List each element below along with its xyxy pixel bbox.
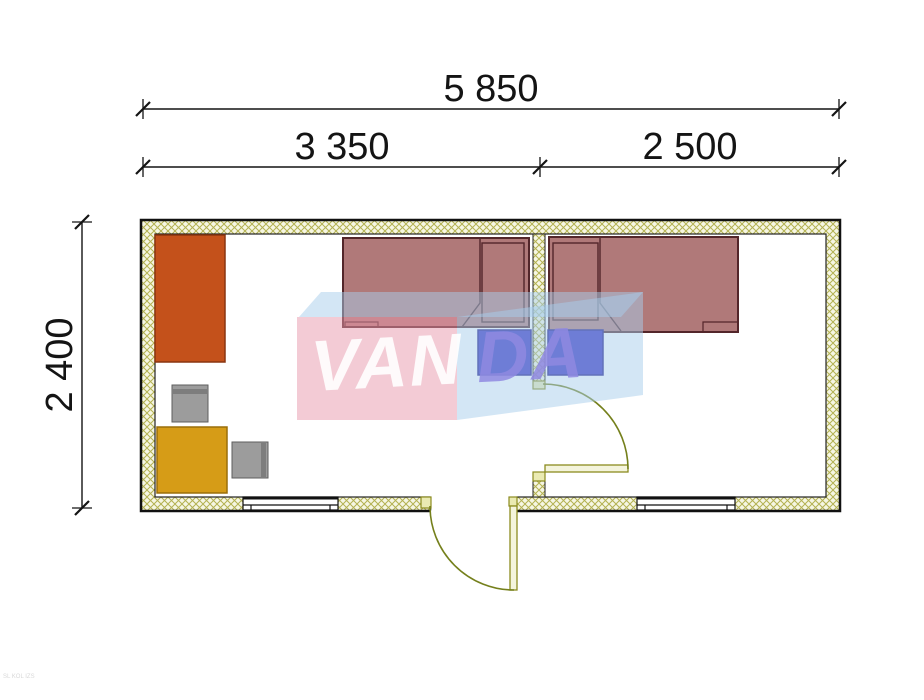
vanda-watermark: VAN DA bbox=[297, 292, 643, 420]
window-right-room bbox=[637, 497, 735, 510]
chair-backrest bbox=[172, 389, 208, 394]
entrance-door-leaf bbox=[510, 506, 517, 590]
dimension-label-right-room: 2 500 bbox=[642, 126, 737, 168]
floor-plan-drawing: VAN DA 5 850 3 350 2 500 2 400 SL KOL IZ… bbox=[0, 0, 924, 700]
corner-note: SL KOL IZS bbox=[3, 674, 35, 680]
partition-lower-stub bbox=[533, 481, 545, 497]
dimension-depth: 2 400 bbox=[39, 215, 92, 515]
window-left-room bbox=[243, 497, 338, 510]
watermark-text-van: VAN bbox=[309, 319, 466, 407]
entrance-door-swing-arc bbox=[430, 506, 514, 590]
dimension-room-widths: 3 350 2 500 bbox=[136, 126, 846, 177]
entrance-door-jamb-hinge bbox=[509, 497, 517, 506]
interior-door-leaf bbox=[545, 465, 628, 472]
interior-door-jamb-hinge bbox=[533, 472, 545, 481]
chair-backrest bbox=[261, 442, 266, 478]
floor-plan-page: VAN DA 5 850 3 350 2 500 2 400 SL KOL IZ… bbox=[0, 0, 924, 700]
desk bbox=[157, 427, 227, 493]
dimension-total-width: 5 850 bbox=[136, 68, 846, 119]
dimension-label-total: 5 850 bbox=[443, 68, 538, 110]
watermark-text-da: DA bbox=[474, 313, 586, 399]
entrance-opening bbox=[431, 496, 517, 513]
desk-chair-upper bbox=[172, 385, 208, 422]
dimension-label-depth: 2 400 bbox=[39, 317, 81, 412]
dimension-label-left-room: 3 350 bbox=[294, 126, 389, 168]
desk-chair-lower bbox=[232, 442, 268, 478]
doorway-gap bbox=[431, 496, 517, 513]
wardrobe bbox=[155, 235, 225, 362]
